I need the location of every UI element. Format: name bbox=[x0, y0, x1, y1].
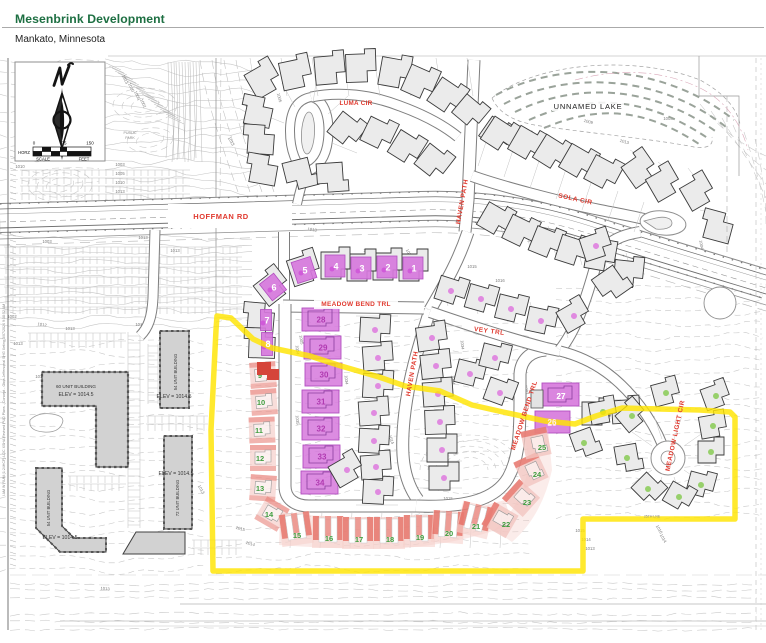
svg-text:Mesenbrink Development: Mesenbrink Development bbox=[15, 12, 165, 26]
svg-text:1034: 1034 bbox=[344, 375, 350, 385]
svg-text:1: 1 bbox=[411, 264, 416, 274]
svg-text:1005: 1005 bbox=[115, 171, 125, 176]
svg-text:28: 28 bbox=[317, 316, 326, 325]
svg-text:ELEV = 1014.5: ELEV = 1014.5 bbox=[42, 535, 77, 541]
svg-text:6: 6 bbox=[271, 283, 276, 293]
svg-text:UNNAMED LAKE: UNNAMED LAKE bbox=[554, 102, 623, 111]
svg-text:54 UNIT BUILDING: 54 UNIT BUILDING bbox=[173, 354, 178, 390]
svg-text:PUBLIC: PUBLIC bbox=[124, 131, 137, 135]
svg-text:1013: 1013 bbox=[138, 235, 148, 240]
svg-text:12: 12 bbox=[256, 454, 264, 463]
svg-text:PARK: PARK bbox=[125, 136, 135, 140]
svg-text:23: 23 bbox=[523, 498, 531, 507]
svg-text:10: 10 bbox=[257, 398, 265, 407]
svg-text:1015: 1015 bbox=[467, 264, 477, 269]
svg-text:21: 21 bbox=[472, 522, 480, 531]
svg-text:2: 2 bbox=[385, 263, 390, 273]
svg-text:32: 32 bbox=[317, 425, 326, 434]
svg-text:8: 8 bbox=[265, 339, 270, 349]
svg-text:ELEV = 1014.5: ELEV = 1014.5 bbox=[158, 471, 193, 477]
svg-text:ELEV = 1014.5: ELEV = 1014.5 bbox=[58, 392, 93, 398]
svg-text:16: 16 bbox=[325, 534, 333, 543]
svg-text:1013: 1013 bbox=[585, 546, 595, 551]
svg-text:7: 7 bbox=[264, 316, 269, 326]
svg-text:5: 5 bbox=[302, 266, 307, 276]
svg-text:31: 31 bbox=[317, 398, 326, 407]
svg-text:15: 15 bbox=[293, 531, 301, 540]
svg-text:13: 13 bbox=[256, 484, 264, 493]
svg-text:30: 30 bbox=[320, 371, 329, 380]
svg-text:1010: 1010 bbox=[115, 180, 125, 185]
svg-text:1034: 1034 bbox=[460, 340, 466, 350]
svg-text:MEADOW BEND TRL: MEADOW BEND TRL bbox=[321, 301, 391, 308]
svg-text:1002: 1002 bbox=[7, 314, 17, 319]
svg-text:18: 18 bbox=[386, 535, 394, 544]
svg-text:1013: 1013 bbox=[170, 248, 180, 253]
svg-text:LUMA CIR: LUMA CIR bbox=[340, 100, 373, 107]
svg-text:FEET: FEET bbox=[79, 157, 90, 162]
svg-text:1035: 1035 bbox=[295, 415, 301, 425]
svg-text:150: 150 bbox=[86, 141, 94, 146]
svg-text:1013: 1013 bbox=[100, 586, 110, 592]
svg-text:1010: 1010 bbox=[15, 164, 25, 169]
svg-text:11: 11 bbox=[255, 426, 263, 435]
svg-text:26: 26 bbox=[548, 418, 557, 427]
svg-text:SCALE: SCALE bbox=[36, 157, 50, 162]
svg-text:19: 19 bbox=[416, 533, 424, 542]
svg-text:29: 29 bbox=[319, 344, 328, 353]
svg-text:72 UNIT BUILDING: 72 UNIT BUILDING bbox=[175, 480, 180, 516]
svg-text:ELEV = 1014.5: ELEV = 1014.5 bbox=[156, 394, 191, 400]
svg-text:34: 34 bbox=[316, 479, 325, 488]
svg-text:HORZ: HORZ bbox=[18, 150, 30, 155]
svg-text:3: 3 bbox=[359, 264, 364, 274]
svg-text:17: 17 bbox=[355, 535, 363, 544]
svg-text:60 UNIT BUILDING: 60 UNIT BUILDING bbox=[56, 384, 96, 389]
svg-text:I AM W RUM (1:24HCF) LDC XSHA: I AM W RUM (1:24HCF) LDC XSHA Revised PU… bbox=[2, 304, 6, 496]
svg-text:25TH LNE: 25TH LNE bbox=[644, 515, 661, 519]
svg-text:1013: 1013 bbox=[65, 326, 75, 331]
svg-text:22: 22 bbox=[502, 520, 510, 529]
svg-text:33: 33 bbox=[318, 453, 327, 462]
svg-text:4: 4 bbox=[333, 262, 338, 272]
svg-text:1013: 1013 bbox=[115, 189, 125, 194]
svg-text:Mankato, Minnesota: Mankato, Minnesota bbox=[15, 34, 105, 45]
svg-text:54 UNIT BUILDING: 54 UNIT BUILDING bbox=[46, 490, 51, 526]
svg-text:27: 27 bbox=[557, 392, 566, 401]
svg-text:14: 14 bbox=[265, 510, 274, 519]
svg-text:20: 20 bbox=[445, 529, 453, 538]
svg-text:25: 25 bbox=[538, 443, 546, 452]
svg-text:24: 24 bbox=[533, 470, 542, 479]
svg-text:1016: 1016 bbox=[495, 278, 505, 283]
svg-text:HOFFMAN RD: HOFFMAN RD bbox=[193, 212, 248, 221]
svg-text:1003: 1003 bbox=[115, 162, 125, 167]
svg-text:75: 75 bbox=[61, 141, 67, 146]
